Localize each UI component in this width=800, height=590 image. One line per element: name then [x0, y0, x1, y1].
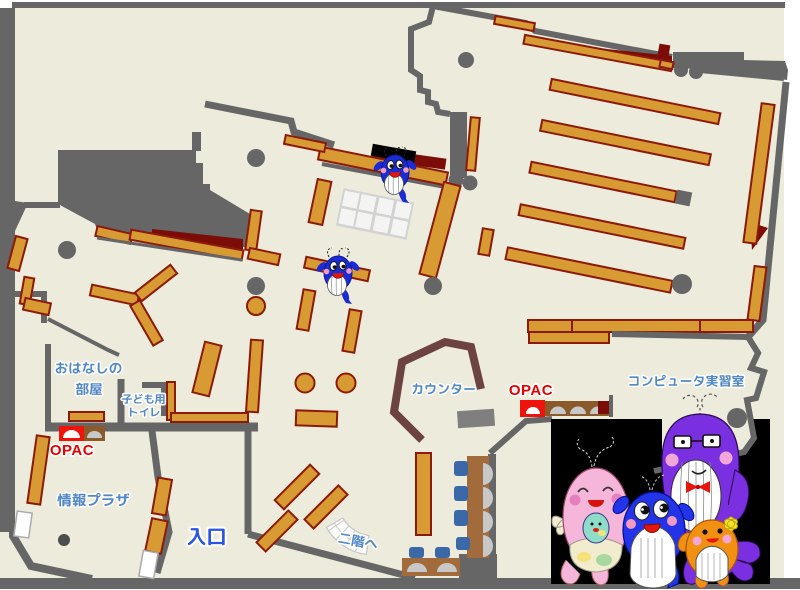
- svg-text:OPAC: OPAC: [50, 442, 94, 459]
- svg-text:OPAC: OPAC: [509, 382, 553, 399]
